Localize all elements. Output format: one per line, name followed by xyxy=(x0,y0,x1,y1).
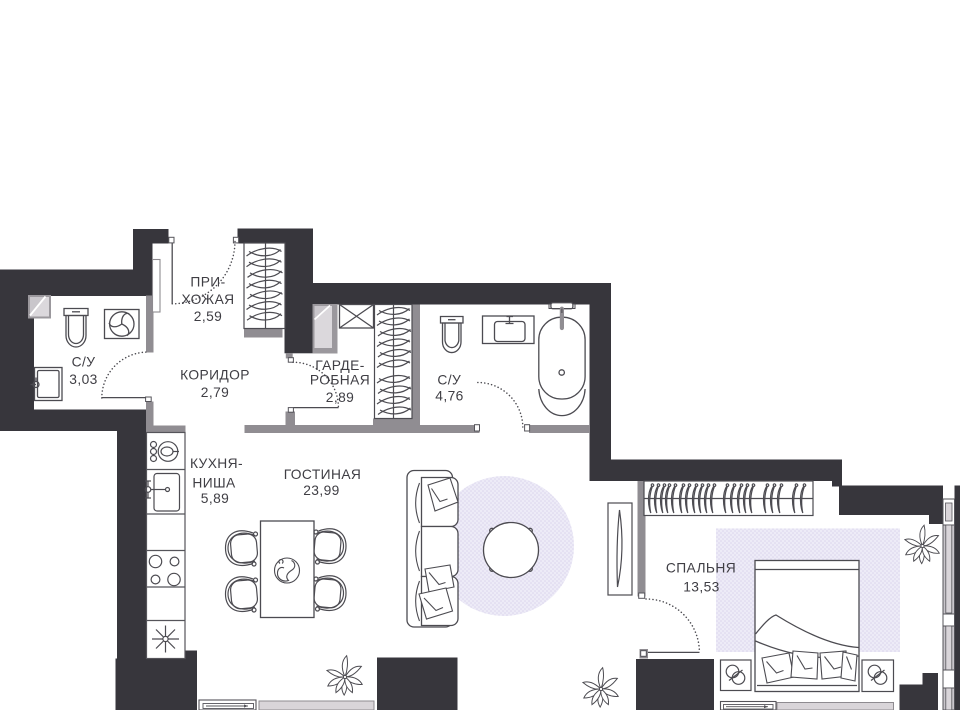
svg-text:КОРИДОР: КОРИДОР xyxy=(180,368,250,383)
svg-text:2,79: 2,79 xyxy=(201,385,229,400)
svg-text:3,03: 3,03 xyxy=(69,372,97,387)
svg-text:С/У: С/У xyxy=(437,373,461,388)
svg-text:ПРИ-: ПРИ- xyxy=(190,274,225,289)
svg-text:2,59: 2,59 xyxy=(194,309,222,324)
svg-text:СПАЛЬНЯ: СПАЛЬНЯ xyxy=(666,560,736,575)
svg-text:ГОСТИНАЯ: ГОСТИНАЯ xyxy=(284,467,362,482)
svg-text:ГАРДЕ-: ГАРДЕ- xyxy=(315,358,365,373)
svg-text:РОБНАЯ: РОБНАЯ xyxy=(310,373,370,388)
svg-text:С/У: С/У xyxy=(72,354,96,369)
svg-text:КУХНЯ-: КУХНЯ- xyxy=(190,456,243,471)
svg-text:ХОЖАЯ: ХОЖАЯ xyxy=(181,292,234,307)
svg-text:4,76: 4,76 xyxy=(435,388,463,403)
svg-text:5,89: 5,89 xyxy=(201,491,229,506)
svg-text:13,53: 13,53 xyxy=(683,579,720,594)
svg-text:2,89: 2,89 xyxy=(326,390,354,405)
svg-text:23,99: 23,99 xyxy=(303,483,340,498)
svg-text:НИША: НИША xyxy=(192,475,236,490)
